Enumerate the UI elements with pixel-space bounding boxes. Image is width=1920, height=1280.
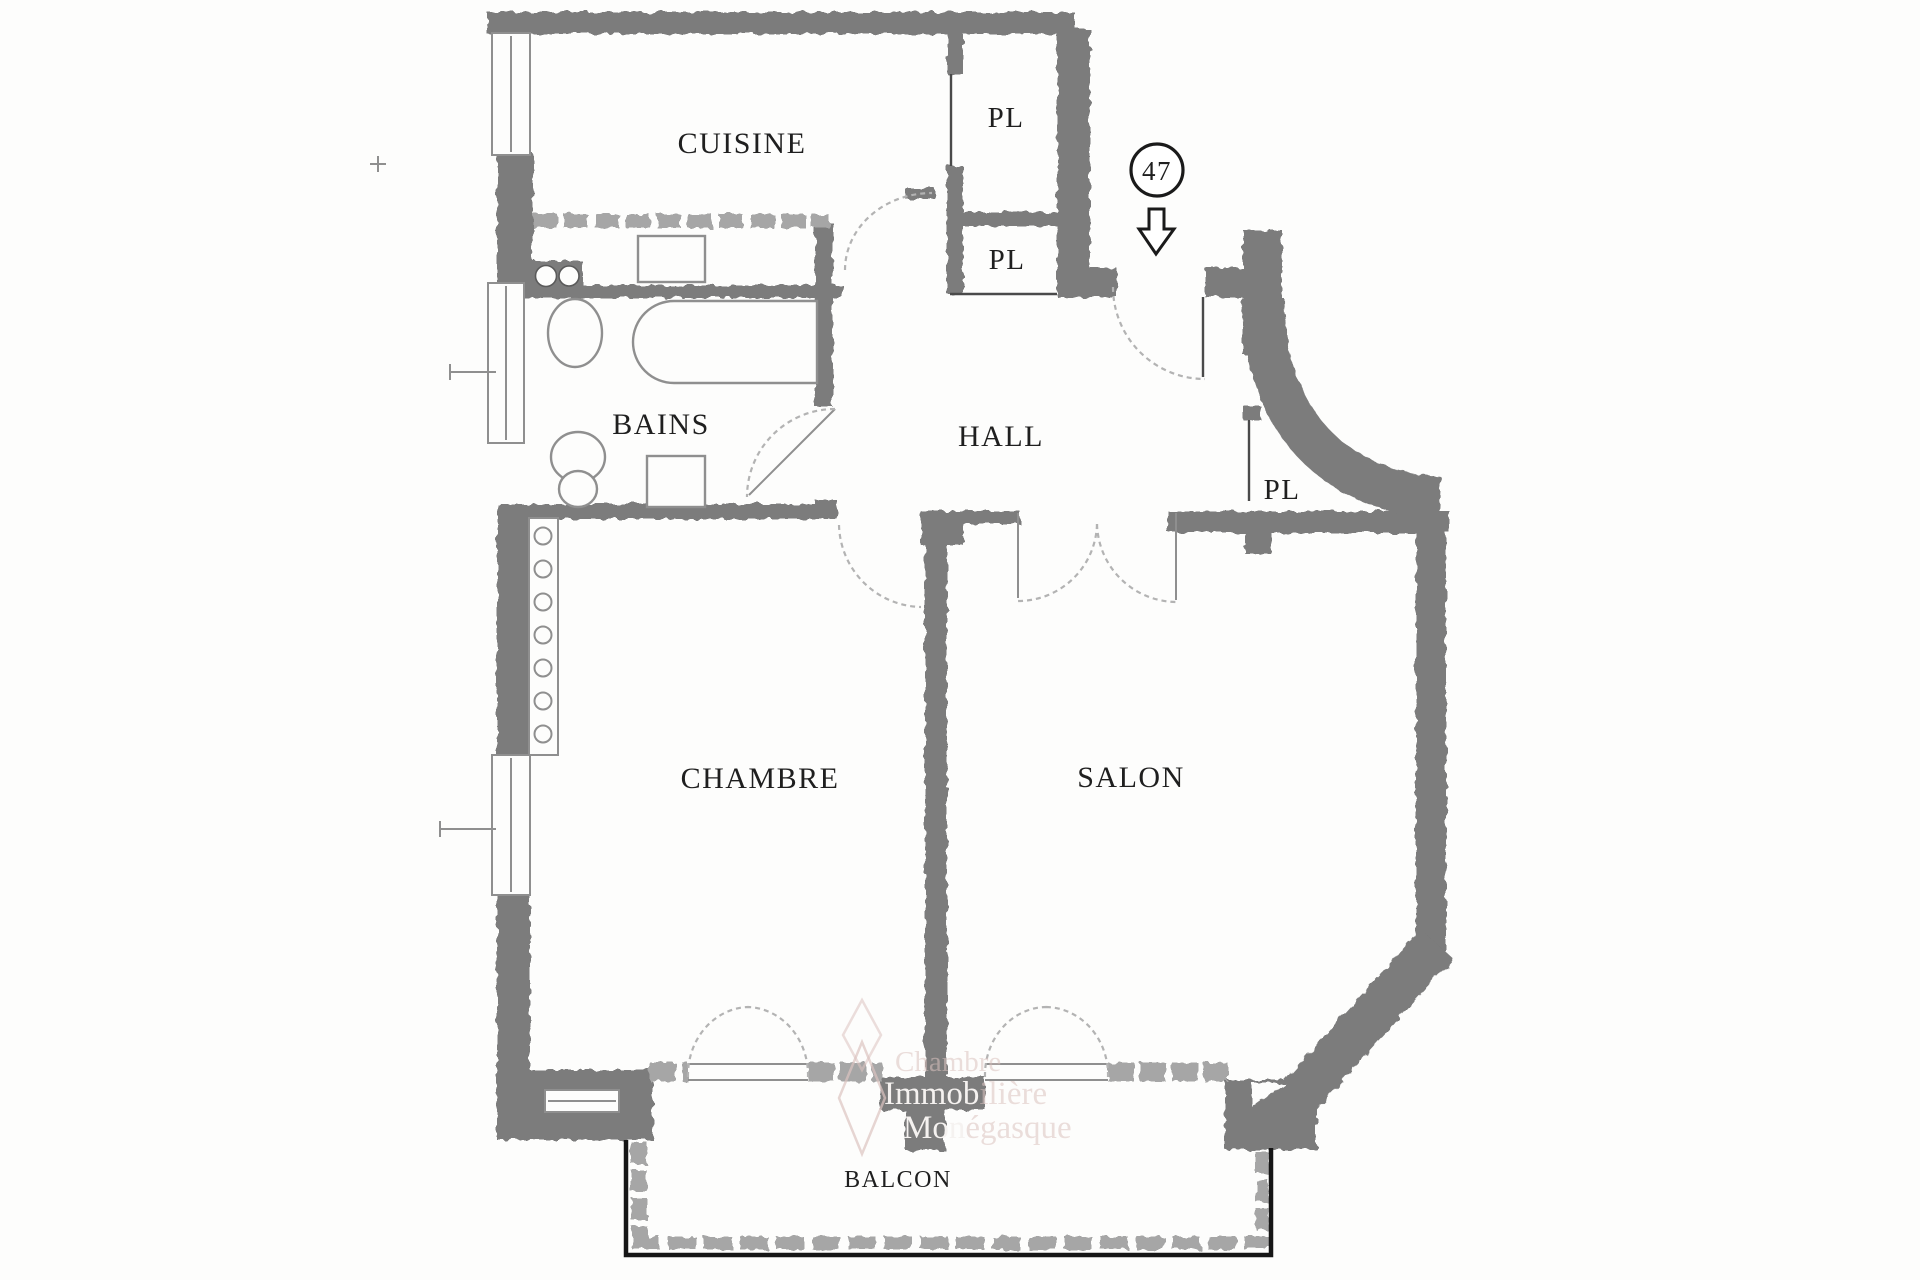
wall-segment: [925, 544, 947, 1079]
wall-segment: [1245, 520, 1271, 554]
door-swing-chambre: [839, 525, 921, 607]
wall-segment: [947, 166, 963, 294]
watermark-line-2-faint: ilière: [979, 1076, 1047, 1112]
wall-segment: [1243, 406, 1261, 420]
entry-arrow-icon: [1139, 209, 1174, 254]
wall-segment: [497, 1112, 653, 1140]
watermark-line-1: Chambre: [895, 1046, 1001, 1078]
room-label-cuisine: CUISINE: [678, 127, 807, 160]
toilet: [548, 299, 602, 367]
wall-segment: [1416, 515, 1446, 957]
dimension-ticks: [370, 156, 496, 837]
unit-number-badge: 47: [1131, 144, 1183, 254]
watermark-line-3-knockout: Mon: [903, 1110, 965, 1146]
bathtub: [633, 301, 817, 383]
door-swing-kitchen: [845, 193, 932, 270]
wall-segment: [958, 511, 1020, 524]
room-label-balcon: BALCON: [844, 1167, 952, 1193]
watermark-diamond-small: [843, 1000, 881, 1070]
walls: [487, 12, 1450, 1150]
room-label-bains: BAINS: [612, 408, 710, 441]
room-label-hall: HALL: [958, 420, 1044, 453]
wall-segment: [487, 12, 1075, 34]
sink-basin: [559, 266, 579, 286]
fixtures: [536, 236, 818, 507]
bidet-seat: [559, 471, 597, 507]
watermark-line-2-knockout: Immob: [884, 1076, 979, 1112]
diagonal-wall: [1294, 944, 1437, 1102]
room-label-salon: SALON: [1077, 761, 1185, 794]
wall-segment: [947, 30, 963, 74]
watermark-line-2: Immobilière: [884, 1076, 1047, 1112]
wall-segment: [921, 511, 963, 545]
door-swing-balcony-chambre: [688, 1007, 808, 1077]
watermark-line-3: Monégasque: [903, 1110, 1072, 1146]
windows: [370, 33, 619, 1112]
unit-number-text: 47: [1142, 156, 1172, 186]
floor-plan-drawing: Chambre Immobilière Monégasque CUISINE P…: [0, 0, 1920, 1280]
duct-shaft: [529, 518, 558, 755]
wall-segment: [815, 500, 837, 519]
floor-plan-page: Chambre Immobilière Monégasque CUISINE P…: [0, 0, 1920, 1280]
wall-segment: [1057, 28, 1090, 278]
room-label-pl-top: PL: [988, 102, 1025, 134]
bains-door-leaf: [749, 409, 835, 495]
room-label-pl-hall: PL: [1264, 474, 1301, 506]
shower-tray: [647, 456, 705, 507]
wall-segment: [1057, 268, 1117, 297]
wall-segment: [497, 893, 530, 1073]
wall-segment: [947, 212, 1075, 226]
room-label-pl-mid: PL: [989, 244, 1026, 276]
room-label-chambre: CHAMBRE: [681, 762, 840, 795]
door-swing-salon-right: [1097, 524, 1177, 602]
wall-segment: [497, 153, 533, 288]
sink-basin: [536, 266, 557, 287]
cooktop: [638, 236, 705, 282]
curved-wall: [1263, 298, 1440, 498]
watermark-diamond-large: [839, 1042, 885, 1154]
door-swing-balcony-salon: [985, 1007, 1108, 1077]
wall-segment: [497, 518, 530, 755]
watermark-line-3-faint: égasque: [965, 1110, 1071, 1146]
door-swing-entry: [1113, 287, 1205, 379]
door-swing-salon-left: [1018, 524, 1097, 601]
duct-outline: [529, 518, 558, 755]
